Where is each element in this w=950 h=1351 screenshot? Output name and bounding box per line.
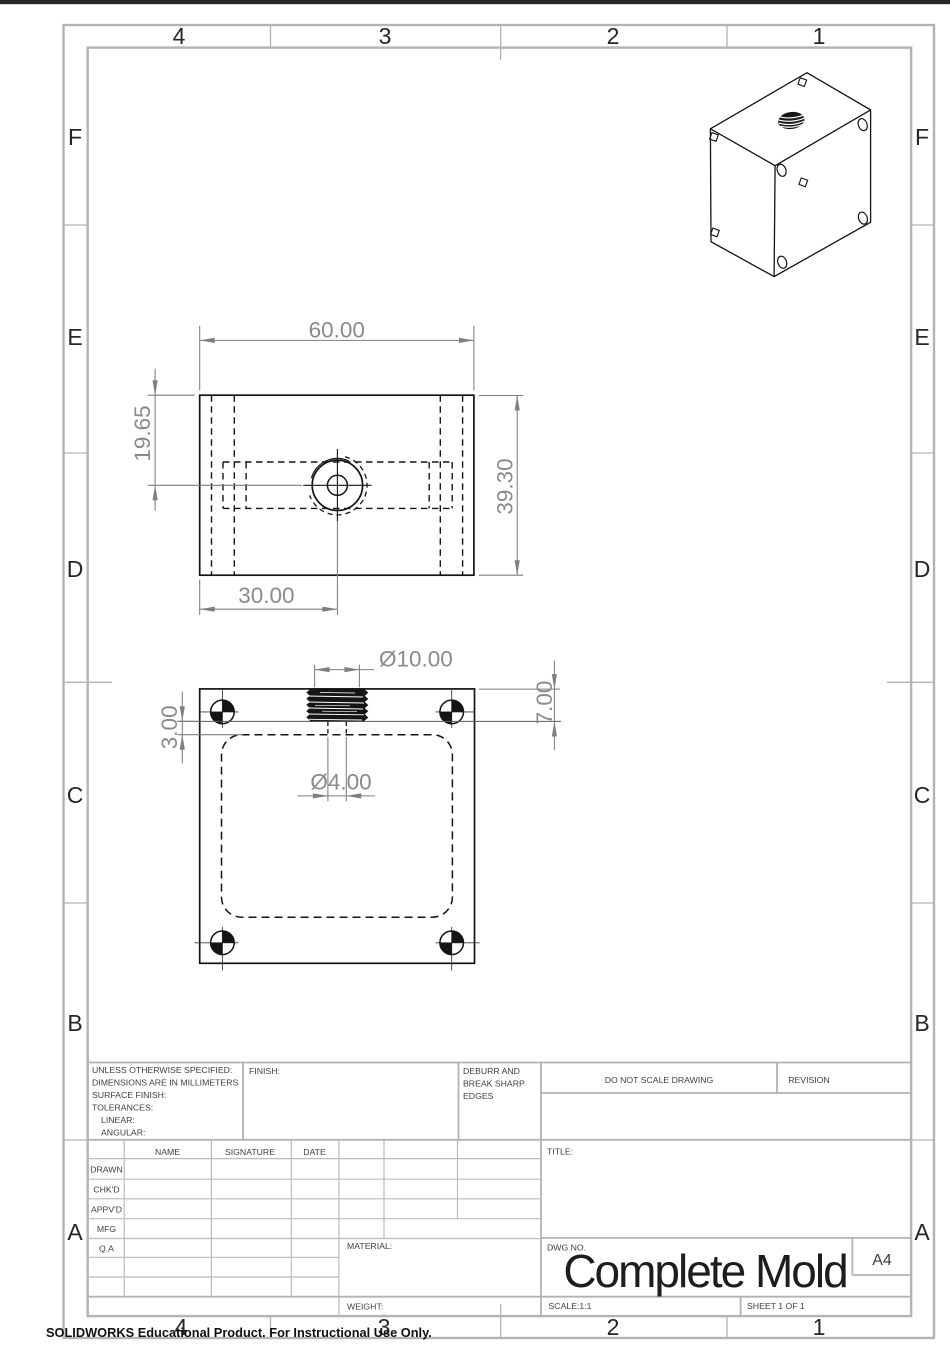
svg-text:C: C [67, 782, 84, 808]
svg-text:7.00: 7.00 [532, 681, 557, 725]
svg-text:A: A [67, 1219, 83, 1245]
svg-text:A: A [914, 1219, 930, 1245]
svg-text:DEBURR AND: DEBURR AND [463, 1066, 520, 1076]
svg-text:19.65: 19.65 [130, 405, 155, 461]
svg-text:D: D [914, 556, 931, 582]
svg-text:30.00: 30.00 [238, 583, 294, 608]
svg-text:B: B [914, 1010, 929, 1036]
svg-text:APPV'D: APPV'D [91, 1205, 122, 1215]
svg-text:MATERIAL:: MATERIAL: [347, 1241, 392, 1251]
svg-text:SCALE:1:1: SCALE:1:1 [549, 1301, 592, 1311]
svg-text:UNLESS OTHERWISE SPECIFIED:: UNLESS OTHERWISE SPECIFIED: [92, 1065, 232, 1075]
svg-text:DRAWN: DRAWN [90, 1165, 123, 1175]
svg-text:E: E [914, 324, 929, 350]
svg-text:EDGES: EDGES [463, 1091, 494, 1101]
svg-text:MFG: MFG [97, 1224, 117, 1234]
svg-text:39.30: 39.30 [493, 458, 518, 514]
svg-text:NAME: NAME [155, 1147, 180, 1157]
svg-text:F: F [915, 124, 929, 150]
svg-text:TITLE:: TITLE: [547, 1147, 573, 1157]
svg-text:REVISION: REVISION [788, 1075, 830, 1085]
svg-text:2: 2 [607, 23, 620, 49]
svg-text:4: 4 [173, 23, 186, 49]
svg-text:CHK'D: CHK'D [93, 1185, 119, 1195]
svg-text:LINEAR:: LINEAR: [101, 1115, 135, 1125]
svg-text:Complete Mold: Complete Mold [563, 1245, 846, 1297]
svg-text:DO NOT SCALE DRAWING: DO NOT SCALE DRAWING [605, 1075, 714, 1085]
svg-text:60.00: 60.00 [309, 318, 365, 343]
svg-text:SHEET 1 OF 1: SHEET 1 OF 1 [747, 1301, 805, 1311]
svg-text:DIMENSIONS ARE IN MILLIMETERS: DIMENSIONS ARE IN MILLIMETERS [92, 1078, 238, 1088]
svg-text:SIGNATURE: SIGNATURE [225, 1147, 275, 1157]
svg-text:DATE: DATE [303, 1147, 326, 1157]
svg-text:Ø4.00: Ø4.00 [310, 770, 371, 795]
svg-text:F: F [68, 124, 82, 150]
svg-text:D: D [67, 556, 84, 582]
svg-text:3.00: 3.00 [157, 705, 182, 749]
svg-text:E: E [67, 324, 82, 350]
svg-text:WEIGHT:: WEIGHT: [347, 1302, 383, 1312]
svg-text:SOLIDWORKS Educational Product: SOLIDWORKS Educational Product. For Inst… [46, 1325, 432, 1340]
svg-text:Ø10.00: Ø10.00 [379, 647, 453, 672]
svg-text:SURFACE FINISH:: SURFACE FINISH: [92, 1090, 166, 1100]
svg-text:C: C [914, 782, 931, 808]
svg-text:1: 1 [813, 1314, 826, 1340]
svg-text:Q.A: Q.A [99, 1244, 114, 1254]
svg-text:3: 3 [379, 23, 392, 49]
svg-text:1: 1 [813, 23, 826, 49]
svg-text:BREAK SHARP: BREAK SHARP [463, 1079, 525, 1089]
svg-text:FINISH:: FINISH: [249, 1066, 280, 1076]
svg-text:ANGULAR:: ANGULAR: [101, 1128, 145, 1138]
svg-text:B: B [67, 1010, 82, 1036]
svg-text:A4: A4 [872, 1252, 892, 1269]
svg-text:2: 2 [607, 1314, 620, 1340]
svg-text:TOLERANCES:: TOLERANCES: [92, 1103, 153, 1113]
